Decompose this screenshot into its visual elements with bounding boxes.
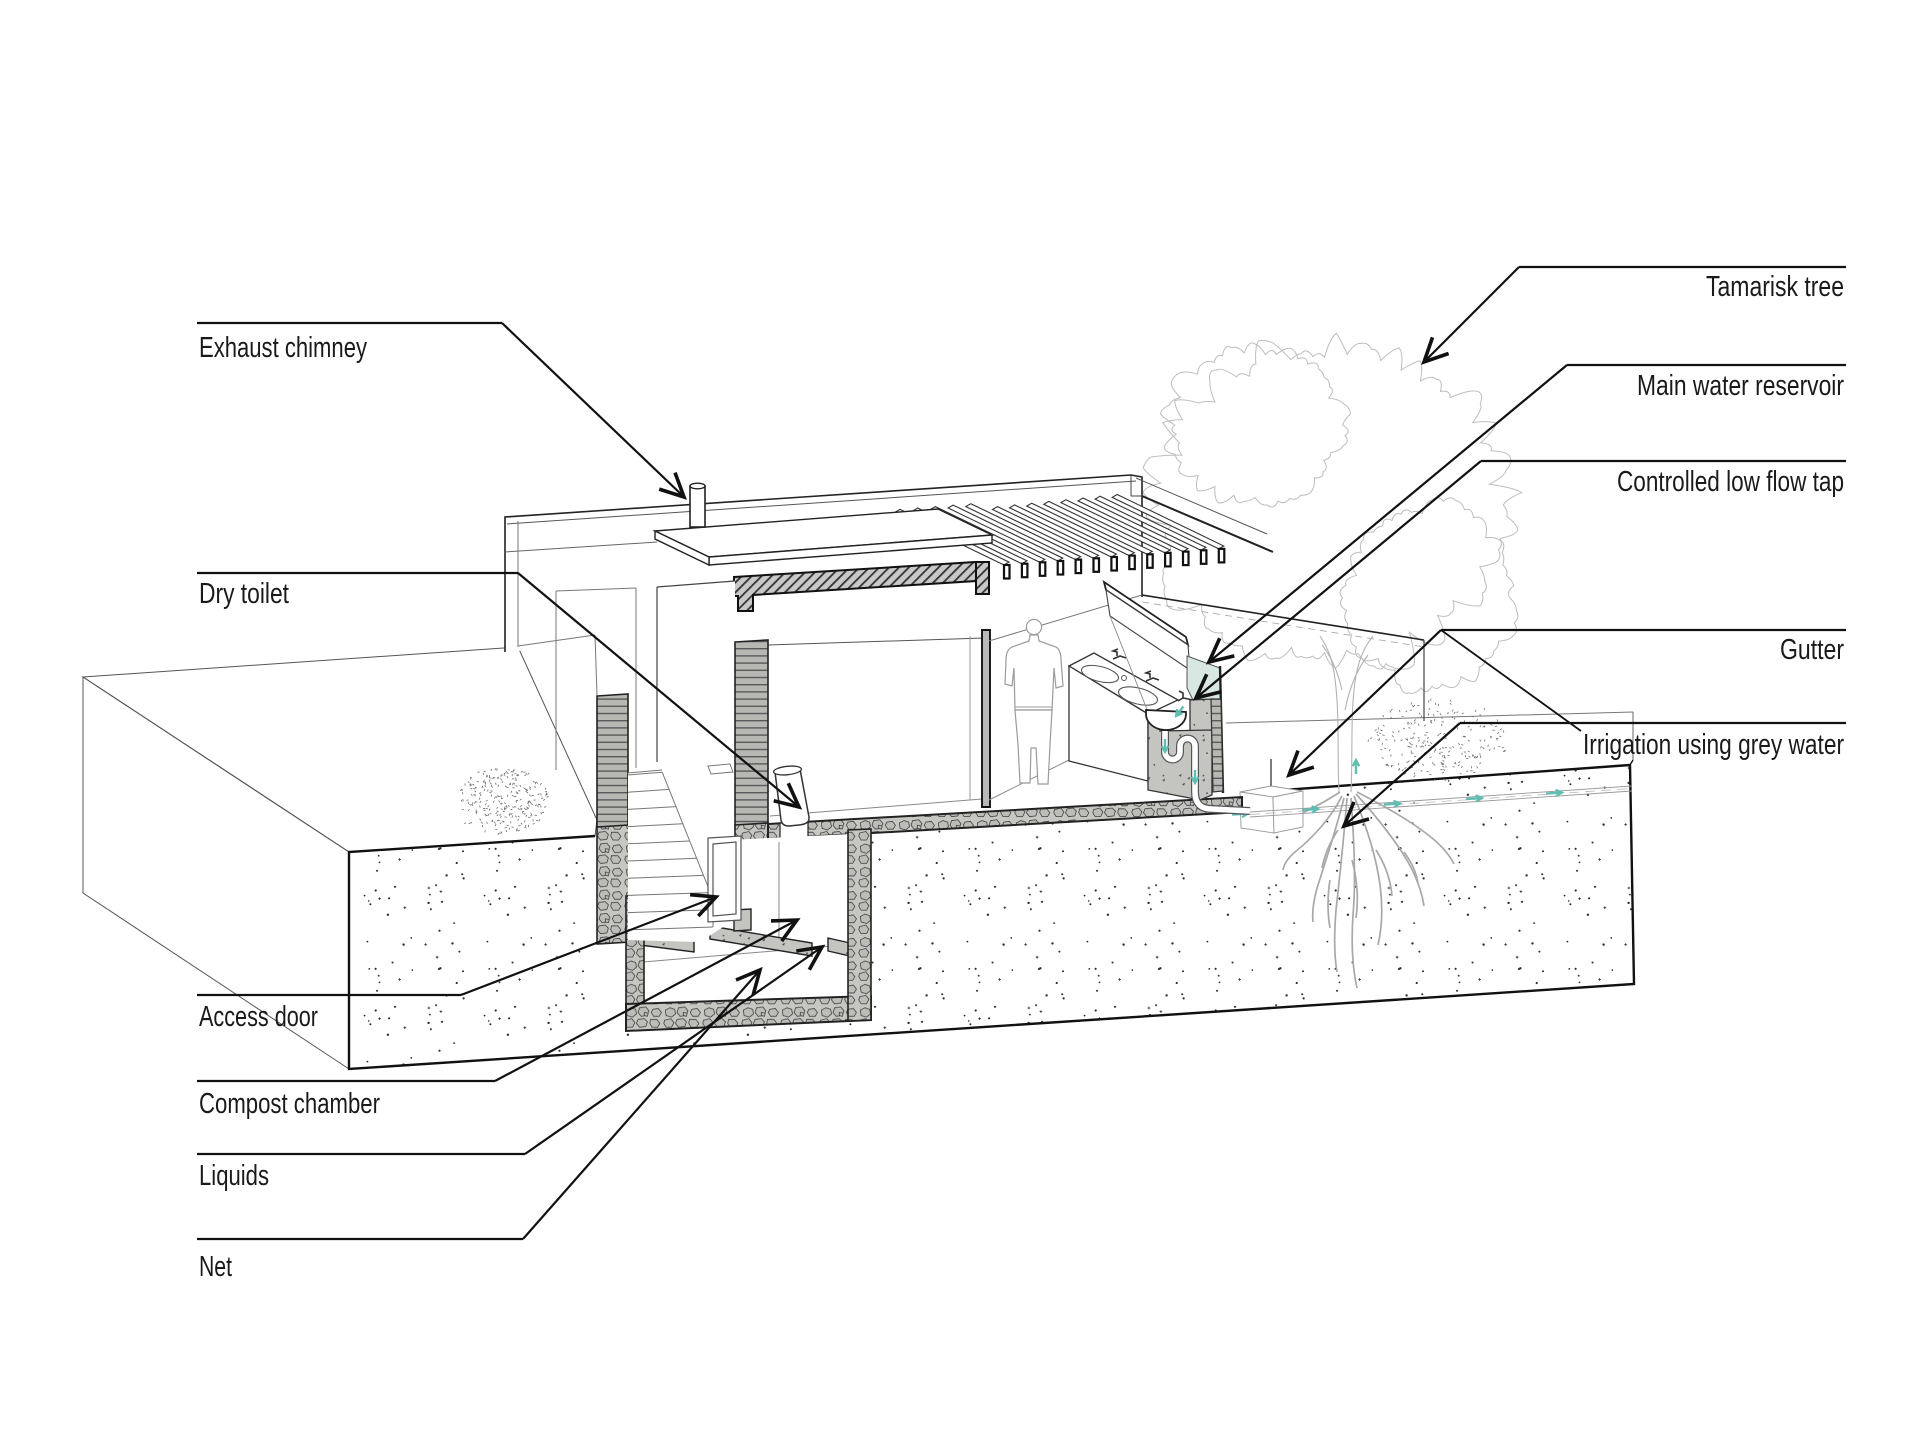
svg-text:Liquids: Liquids <box>199 1160 269 1192</box>
svg-text:Compost chamber: Compost chamber <box>199 1088 380 1120</box>
svg-text:Exhaust chimney: Exhaust chimney <box>199 332 367 364</box>
svg-text:Dry toilet: Dry toilet <box>199 578 289 610</box>
svg-text:Gutter: Gutter <box>1780 634 1844 666</box>
svg-text:Main water reservoir: Main water reservoir <box>1637 370 1844 402</box>
svg-text:Net: Net <box>199 1251 232 1283</box>
svg-text:Irrigation using grey water: Irrigation using grey water <box>1583 729 1844 761</box>
svg-text:Controlled low flow tap: Controlled low flow tap <box>1617 466 1844 498</box>
svg-text:Tamarisk tree: Tamarisk tree <box>1706 271 1844 303</box>
svg-text:Access door: Access door <box>199 1001 318 1033</box>
